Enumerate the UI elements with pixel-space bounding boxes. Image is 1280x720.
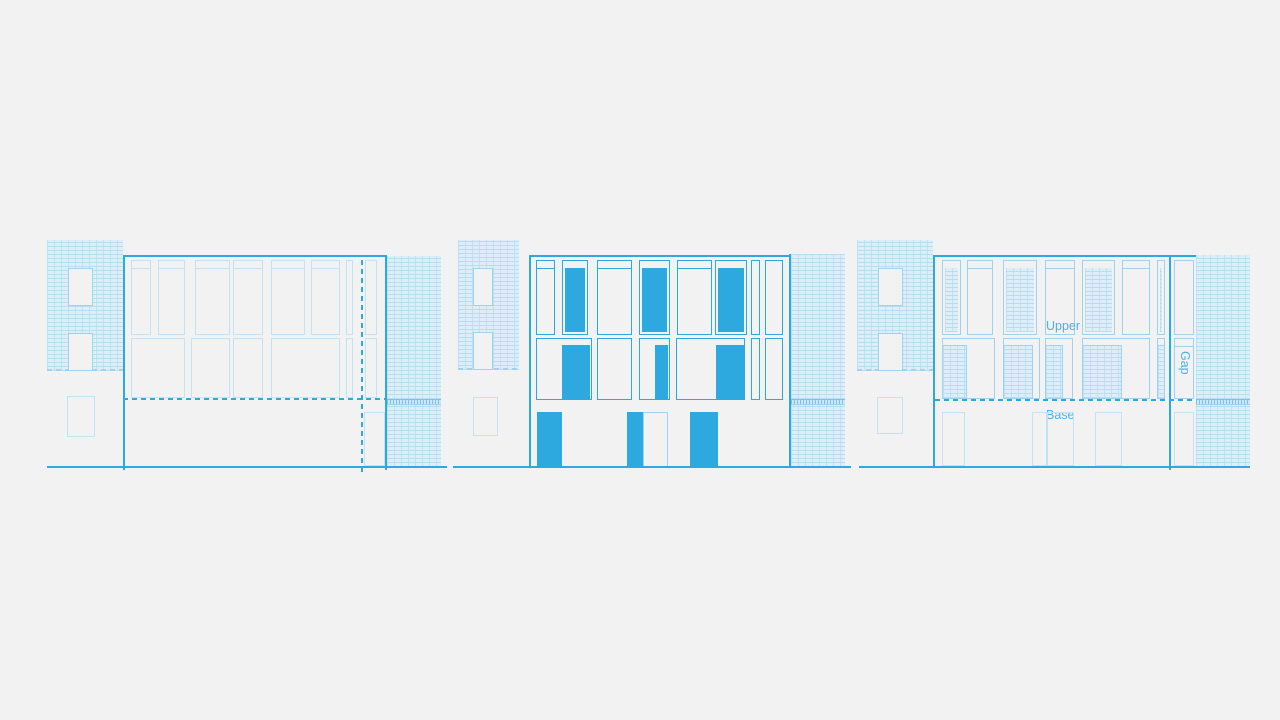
neighbor-right-soldier-band [387, 399, 441, 405]
upper-zone-label: Upper [1046, 320, 1086, 334]
neighbor-left-brick-wall [47, 240, 123, 371]
upper-window [1045, 260, 1075, 335]
neighbor-window [878, 333, 903, 371]
facade-study-drawing: UpperBaseGap [0, 0, 1280, 720]
window-transom-line [312, 268, 339, 269]
base-door-solid [690, 412, 718, 467]
upper-window-narrow [346, 260, 353, 335]
party-wall-dashed-line [361, 255, 363, 472]
base-level-dashed-line [935, 399, 1196, 401]
solid-infill [718, 268, 744, 332]
neighbor-window [878, 268, 903, 306]
mid-window-frame [597, 338, 632, 400]
mid-window-frame [1045, 338, 1073, 399]
mid-window [131, 338, 185, 398]
mid-window-solid-infill [716, 345, 744, 399]
neighbor-window [68, 333, 93, 371]
upper-window [967, 260, 993, 335]
mid-window [365, 338, 377, 398]
window-transom-line [132, 268, 150, 269]
ground-line [453, 466, 851, 468]
upper-window-hatched [1082, 260, 1115, 335]
upper-window-hatched [942, 260, 961, 335]
upper-window-narrow [751, 260, 760, 335]
brick-hatch-infill [1006, 268, 1034, 332]
neighbor-lower-window [877, 397, 903, 434]
elevation-right-hatch-annotated: UpperBaseGap [0, 0, 1280, 720]
window-transom-line [1046, 268, 1074, 269]
upper-window [158, 260, 185, 335]
upper-window-solid [639, 260, 670, 335]
base-door-solid [537, 412, 562, 467]
mid-window [191, 338, 230, 398]
window-transom-line [159, 268, 184, 269]
mid-window-narrow [346, 338, 353, 398]
window-transom-line [234, 268, 262, 269]
mid-window-solid-infill [562, 345, 590, 399]
neighbor-left-brick-base-dash [857, 369, 933, 371]
base-door-solid [627, 412, 643, 467]
base-door [643, 412, 668, 467]
facade-right-edge [385, 255, 387, 470]
gap-band-door [1174, 412, 1194, 466]
mid-window-frame [1003, 338, 1040, 399]
gap-zone-label: Gap [1177, 351, 1191, 383]
mid-window-frame [942, 338, 995, 399]
neighbor-left-brick-base-dash [47, 369, 123, 371]
mid-window-hatch-infill [1082, 345, 1122, 399]
base-door [364, 412, 385, 466]
brick-hatch-infill [1160, 268, 1162, 332]
upper-window [677, 260, 712, 335]
window-transom-line [968, 268, 992, 269]
mid-window-frame [676, 338, 745, 400]
base-door [1047, 412, 1074, 466]
window-transom-line [196, 268, 229, 269]
neighbor-lower-window [67, 396, 95, 437]
base-door [1032, 412, 1047, 466]
mid-window-frame [536, 338, 592, 400]
upper-window-solid [562, 260, 588, 335]
facade-top-line [529, 255, 791, 257]
upper-window-hatched-narrow [1157, 260, 1165, 335]
mid-window-frame [1082, 338, 1150, 399]
mid-window-hatch-infill [1045, 345, 1063, 399]
ground-line [47, 466, 447, 468]
upper-window [365, 260, 377, 335]
facade-right-edge [1169, 255, 1171, 470]
neighbor-lower-window [473, 397, 498, 436]
upper-window [597, 260, 632, 335]
gap-band-mid-window [1174, 338, 1194, 399]
mid-window-frame-narrow [1157, 338, 1165, 399]
window-transom-line [537, 268, 554, 269]
neighbor-left-brick-wall [458, 240, 519, 370]
mid-window-hatch-infill [942, 345, 967, 399]
upper-window [311, 260, 340, 335]
facade-left-edge [933, 255, 935, 467]
neighbor-right-brick-wall [387, 256, 441, 467]
neighbor-right-brick-wall [791, 254, 845, 467]
facade-right-edge [789, 254, 791, 468]
mid-window-hatch-infill [1003, 345, 1033, 399]
solid-infill [565, 268, 585, 332]
upper-window-hatched [1003, 260, 1037, 335]
upper-window [233, 260, 263, 335]
facade-left-edge [123, 255, 125, 470]
base-door [942, 412, 965, 466]
mid-window-narrow [751, 338, 760, 400]
window-transom-line [272, 268, 304, 269]
neighbor-left-brick-base-dash [458, 368, 519, 370]
facade-left-edge [529, 255, 531, 467]
neighbor-window [473, 332, 493, 370]
base-door [1095, 412, 1122, 466]
brick-hatch-infill [945, 268, 958, 332]
upper-window [271, 260, 305, 335]
mid-window-frame [765, 338, 783, 400]
window-transom-line [678, 268, 711, 269]
base-zone-label: Base [1046, 409, 1082, 423]
window-transom-line [1175, 346, 1193, 347]
mid-window-hatch-infill [1157, 345, 1165, 399]
neighbor-left-brick-wall [857, 240, 933, 371]
neighbor-right-soldier-band [1196, 399, 1250, 405]
neighbor-window [473, 268, 493, 306]
solid-infill [642, 268, 667, 332]
mid-window-solid-infill [655, 345, 668, 399]
facade-top-line [123, 255, 387, 257]
upper-window-solid [715, 260, 747, 335]
upper-window [765, 260, 783, 335]
neighbor-right-soldier-band [791, 399, 845, 405]
neighbor-window [68, 268, 93, 306]
upper-window [1122, 260, 1150, 335]
elevation-left-outline-study [0, 0, 1280, 720]
window-transom-line [598, 268, 631, 269]
upper-window [536, 260, 555, 335]
facade-top-line [935, 255, 1196, 257]
upper-window [195, 260, 230, 335]
mid-window [233, 338, 263, 398]
mid-window [271, 338, 340, 398]
elevation-middle-solid-infill [0, 0, 1280, 720]
neighbor-right-brick-wall [1196, 255, 1250, 467]
brick-hatch-infill [1085, 268, 1112, 332]
window-transom-line [1123, 268, 1149, 269]
base-level-dashed-line [123, 398, 386, 400]
gap-band-upper-window [1174, 260, 1194, 335]
ground-line [859, 466, 1250, 468]
mid-window-frame [639, 338, 670, 400]
upper-window [131, 260, 151, 335]
